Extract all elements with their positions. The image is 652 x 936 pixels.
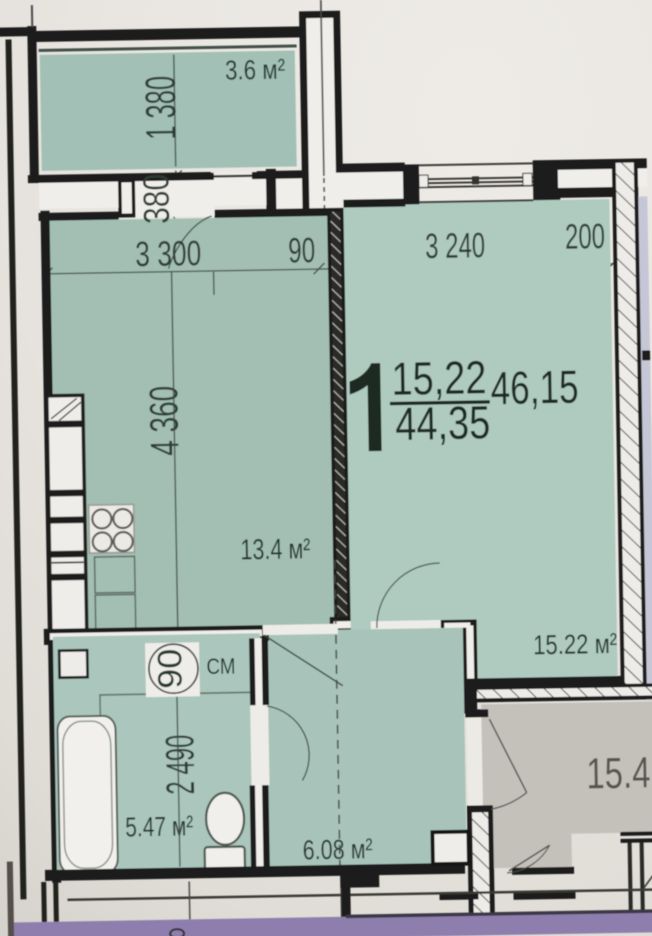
svg-text:4 360: 4 360 [142, 385, 187, 456]
svg-text:1 380: 1 380 [136, 75, 185, 140]
svg-text:200: 200 [565, 217, 606, 257]
svg-text:90: 90 [288, 231, 316, 270]
svg-text:2 490: 2 490 [158, 734, 203, 795]
svg-text:15.22 м²: 15.22 м² [533, 628, 618, 660]
svg-text:3 240: 3 240 [425, 226, 486, 266]
svg-text:5.47 м²: 5.47 м² [125, 810, 194, 842]
svg-text:15.4: 15.4 [586, 748, 651, 798]
svg-text:380: 380 [135, 174, 177, 225]
svg-text:13.4 м²: 13.4 м² [240, 533, 311, 566]
svg-text:90: 90 [151, 648, 190, 689]
svg-text:СМ: СМ [206, 654, 235, 680]
svg-text:3.6 м²: 3.6 м² [225, 54, 286, 86]
svg-text:46,15: 46,15 [490, 361, 579, 415]
svg-text:6.08 м²: 6.08 м² [302, 833, 373, 865]
svg-text:3 300: 3 300 [135, 234, 202, 274]
svg-text:44,35: 44,35 [395, 396, 491, 450]
